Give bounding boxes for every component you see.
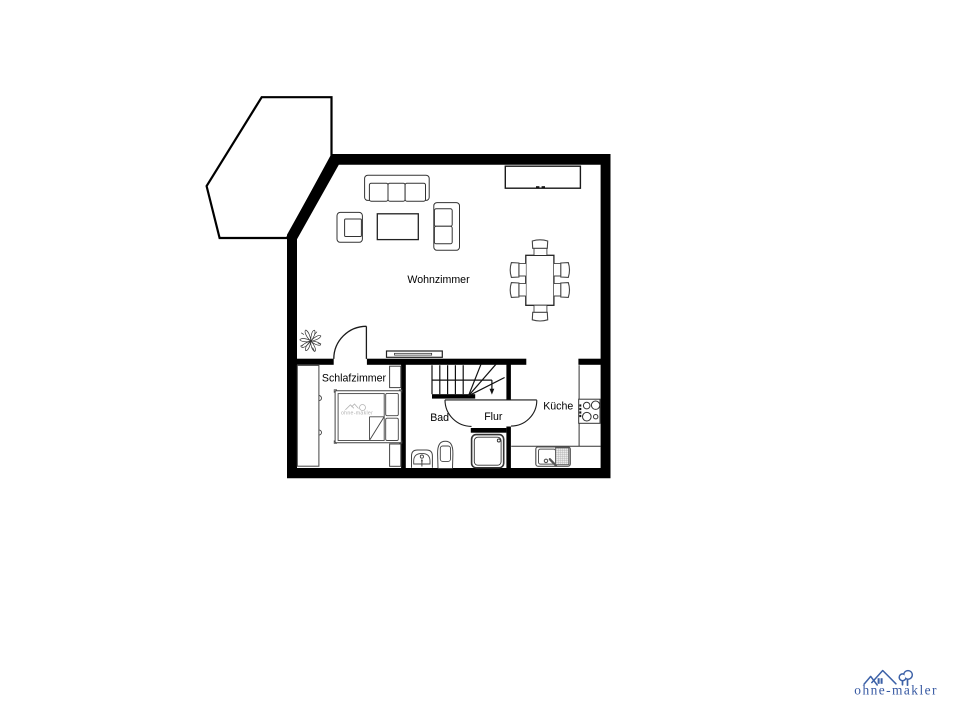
svg-text:Flur: Flur [484, 411, 503, 423]
svg-text:Küche: Küche [543, 401, 573, 413]
svg-text:Schlafzimmer: Schlafzimmer [322, 373, 387, 385]
svg-text:ohne-makler: ohne-makler [341, 411, 373, 417]
svg-text:Bad: Bad [430, 412, 449, 424]
svg-text:Wohnzimmer: Wohnzimmer [407, 274, 470, 286]
svg-text:ohne-makler: ohne-makler [854, 683, 938, 698]
